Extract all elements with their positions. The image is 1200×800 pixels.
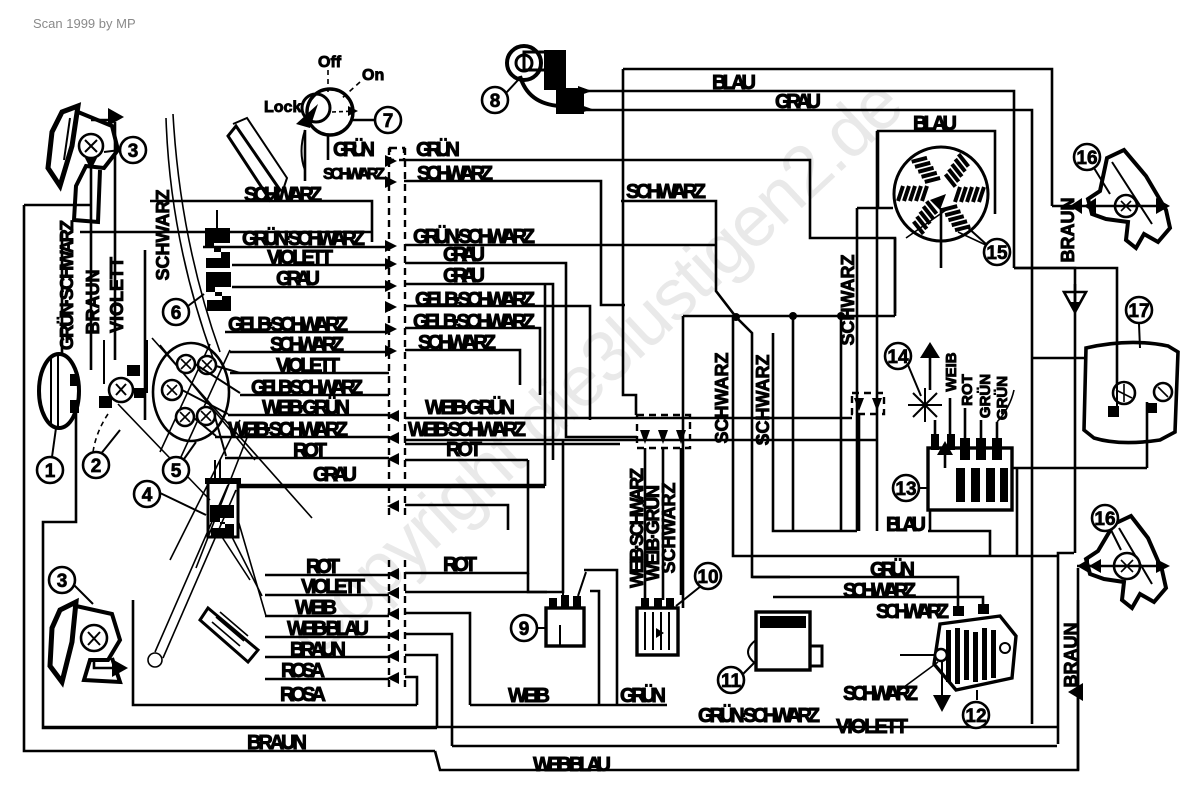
svg-text:Off: Off — [318, 54, 342, 71]
svg-text:GRÜN: GRÜN — [620, 684, 666, 707]
svg-text:SCHWARZ: SCHWARZ — [270, 334, 344, 356]
svg-text:12: 12 — [965, 706, 986, 727]
svg-text:ROT: ROT — [959, 374, 976, 406]
svg-text:GRÜN·SCHWARZ: GRÜN·SCHWARZ — [698, 704, 820, 727]
svg-text:On: On — [362, 67, 384, 84]
svg-text:Scan 1999 by MP: Scan 1999 by MP — [33, 16, 136, 31]
svg-text:BRAUN: BRAUN — [290, 639, 346, 661]
svg-text:WEIB: WEIB — [295, 597, 337, 619]
svg-text:GRAU: GRAU — [313, 464, 357, 486]
svg-text:GRAU: GRAU — [443, 265, 485, 287]
svg-text:ROT: ROT — [446, 439, 482, 461]
svg-text:VIOLETT: VIOLETT — [836, 716, 908, 738]
svg-text:BRAUN: BRAUN — [83, 270, 103, 335]
svg-text:GRÜN: GRÜN — [333, 138, 375, 161]
svg-text:6: 6 — [171, 303, 182, 324]
svg-text:BLAU: BLAU — [886, 514, 926, 536]
svg-text:WEIB·SCHWARZ: WEIB·SCHWARZ — [228, 419, 348, 441]
svg-text:SCHWARZ: SCHWARZ — [153, 190, 173, 281]
svg-text:13: 13 — [895, 479, 916, 500]
svg-text:ROT: ROT — [443, 554, 477, 576]
svg-text:ROSA: ROSA — [281, 660, 325, 682]
svg-text:5: 5 — [171, 461, 182, 482]
svg-text:3: 3 — [57, 571, 68, 592]
svg-text:BLAU: BLAU — [712, 72, 756, 94]
svg-text:WEIB: WEIB — [508, 685, 550, 707]
svg-text:16: 16 — [1094, 509, 1115, 530]
svg-text:VIOLETT: VIOLETT — [107, 257, 127, 333]
svg-text:GELB·SCHWARZ: GELB·SCHWARZ — [415, 289, 535, 311]
svg-text:WEIB·GRÜN: WEIB·GRÜN — [262, 396, 350, 419]
svg-text:WEIB·SCHWARZ: WEIB·SCHWARZ — [408, 419, 526, 441]
svg-text:GRAU: GRAU — [775, 91, 821, 113]
svg-text:SCHWARZ: SCHWARZ — [843, 683, 918, 705]
svg-text:VIOLETT: VIOLETT — [267, 247, 333, 269]
svg-text:14: 14 — [887, 347, 909, 368]
svg-text:BRAUN: BRAUN — [1061, 623, 1081, 688]
svg-text:VIOLETT: VIOLETT — [276, 355, 340, 377]
svg-text:7: 7 — [383, 111, 394, 132]
svg-text:WEIB·BLAU: WEIB·BLAU — [533, 754, 611, 776]
svg-text:3: 3 — [128, 141, 139, 162]
svg-text:GRÜN: GRÜN — [994, 376, 1011, 420]
svg-text:SCHWARZ: SCHWARZ — [843, 580, 916, 602]
svg-text:8: 8 — [490, 91, 501, 112]
svg-text:SCHWARZ: SCHWARZ — [626, 181, 706, 203]
svg-text:11: 11 — [721, 671, 742, 692]
svg-text:9: 9 — [519, 619, 530, 640]
svg-text:4: 4 — [142, 485, 153, 506]
svg-text:GRAU: GRAU — [443, 244, 485, 266]
svg-text:GRÜN: GRÜN — [416, 138, 460, 161]
svg-text:SCHWARZ: SCHWARZ — [244, 184, 322, 206]
svg-text:SCHWARZ: SCHWARZ — [838, 255, 858, 346]
svg-text:SCHWARZ: SCHWARZ — [876, 601, 949, 623]
svg-text:SCHWARZ: SCHWARZ — [323, 166, 385, 183]
svg-text:GELB·SCHWARZ: GELB·SCHWARZ — [413, 311, 535, 333]
svg-text:SCHWARZ: SCHWARZ — [659, 483, 679, 574]
svg-text:Lock: Lock — [264, 99, 301, 116]
svg-text:GRÜN·SCHWARZ: GRÜN·SCHWARZ — [57, 220, 77, 350]
svg-text:BRAUN: BRAUN — [247, 732, 307, 754]
svg-text:GELB·SCHWARZ: GELB·SCHWARZ — [228, 314, 348, 336]
svg-text:WEIB·GRÜN: WEIB·GRÜN — [425, 396, 515, 419]
svg-text:GELB·SCHWARZ: GELB·SCHWARZ — [251, 377, 363, 399]
svg-text:ROT: ROT — [293, 440, 327, 462]
svg-text:17: 17 — [1128, 301, 1149, 322]
svg-text:SCHWARZ: SCHWARZ — [417, 163, 493, 185]
svg-text:SCHWARZ: SCHWARZ — [418, 332, 496, 354]
svg-text:GRÜN: GRÜN — [870, 558, 915, 581]
svg-text:GRAU: GRAU — [276, 268, 320, 290]
svg-text:BLAU: BLAU — [913, 113, 957, 135]
svg-text:ROT: ROT — [306, 556, 340, 578]
svg-text:1: 1 — [45, 461, 56, 482]
svg-text:16: 16 — [1076, 148, 1097, 169]
svg-text:WEIB: WEIB — [943, 352, 960, 391]
svg-text:2: 2 — [91, 456, 102, 477]
svg-text:ROSA: ROSA — [280, 684, 326, 706]
svg-text:SCHWARZ: SCHWARZ — [753, 355, 773, 446]
svg-text:SCHWARZ: SCHWARZ — [712, 353, 732, 444]
svg-text:WEIB·BLAU: WEIB·BLAU — [287, 618, 369, 640]
svg-text:GRÜN: GRÜN — [977, 374, 994, 418]
svg-text:BRAUN: BRAUN — [1058, 198, 1078, 263]
svg-text:15: 15 — [986, 243, 1008, 264]
svg-text:VIOLETT: VIOLETT — [301, 576, 365, 598]
svg-text:10: 10 — [697, 567, 718, 588]
